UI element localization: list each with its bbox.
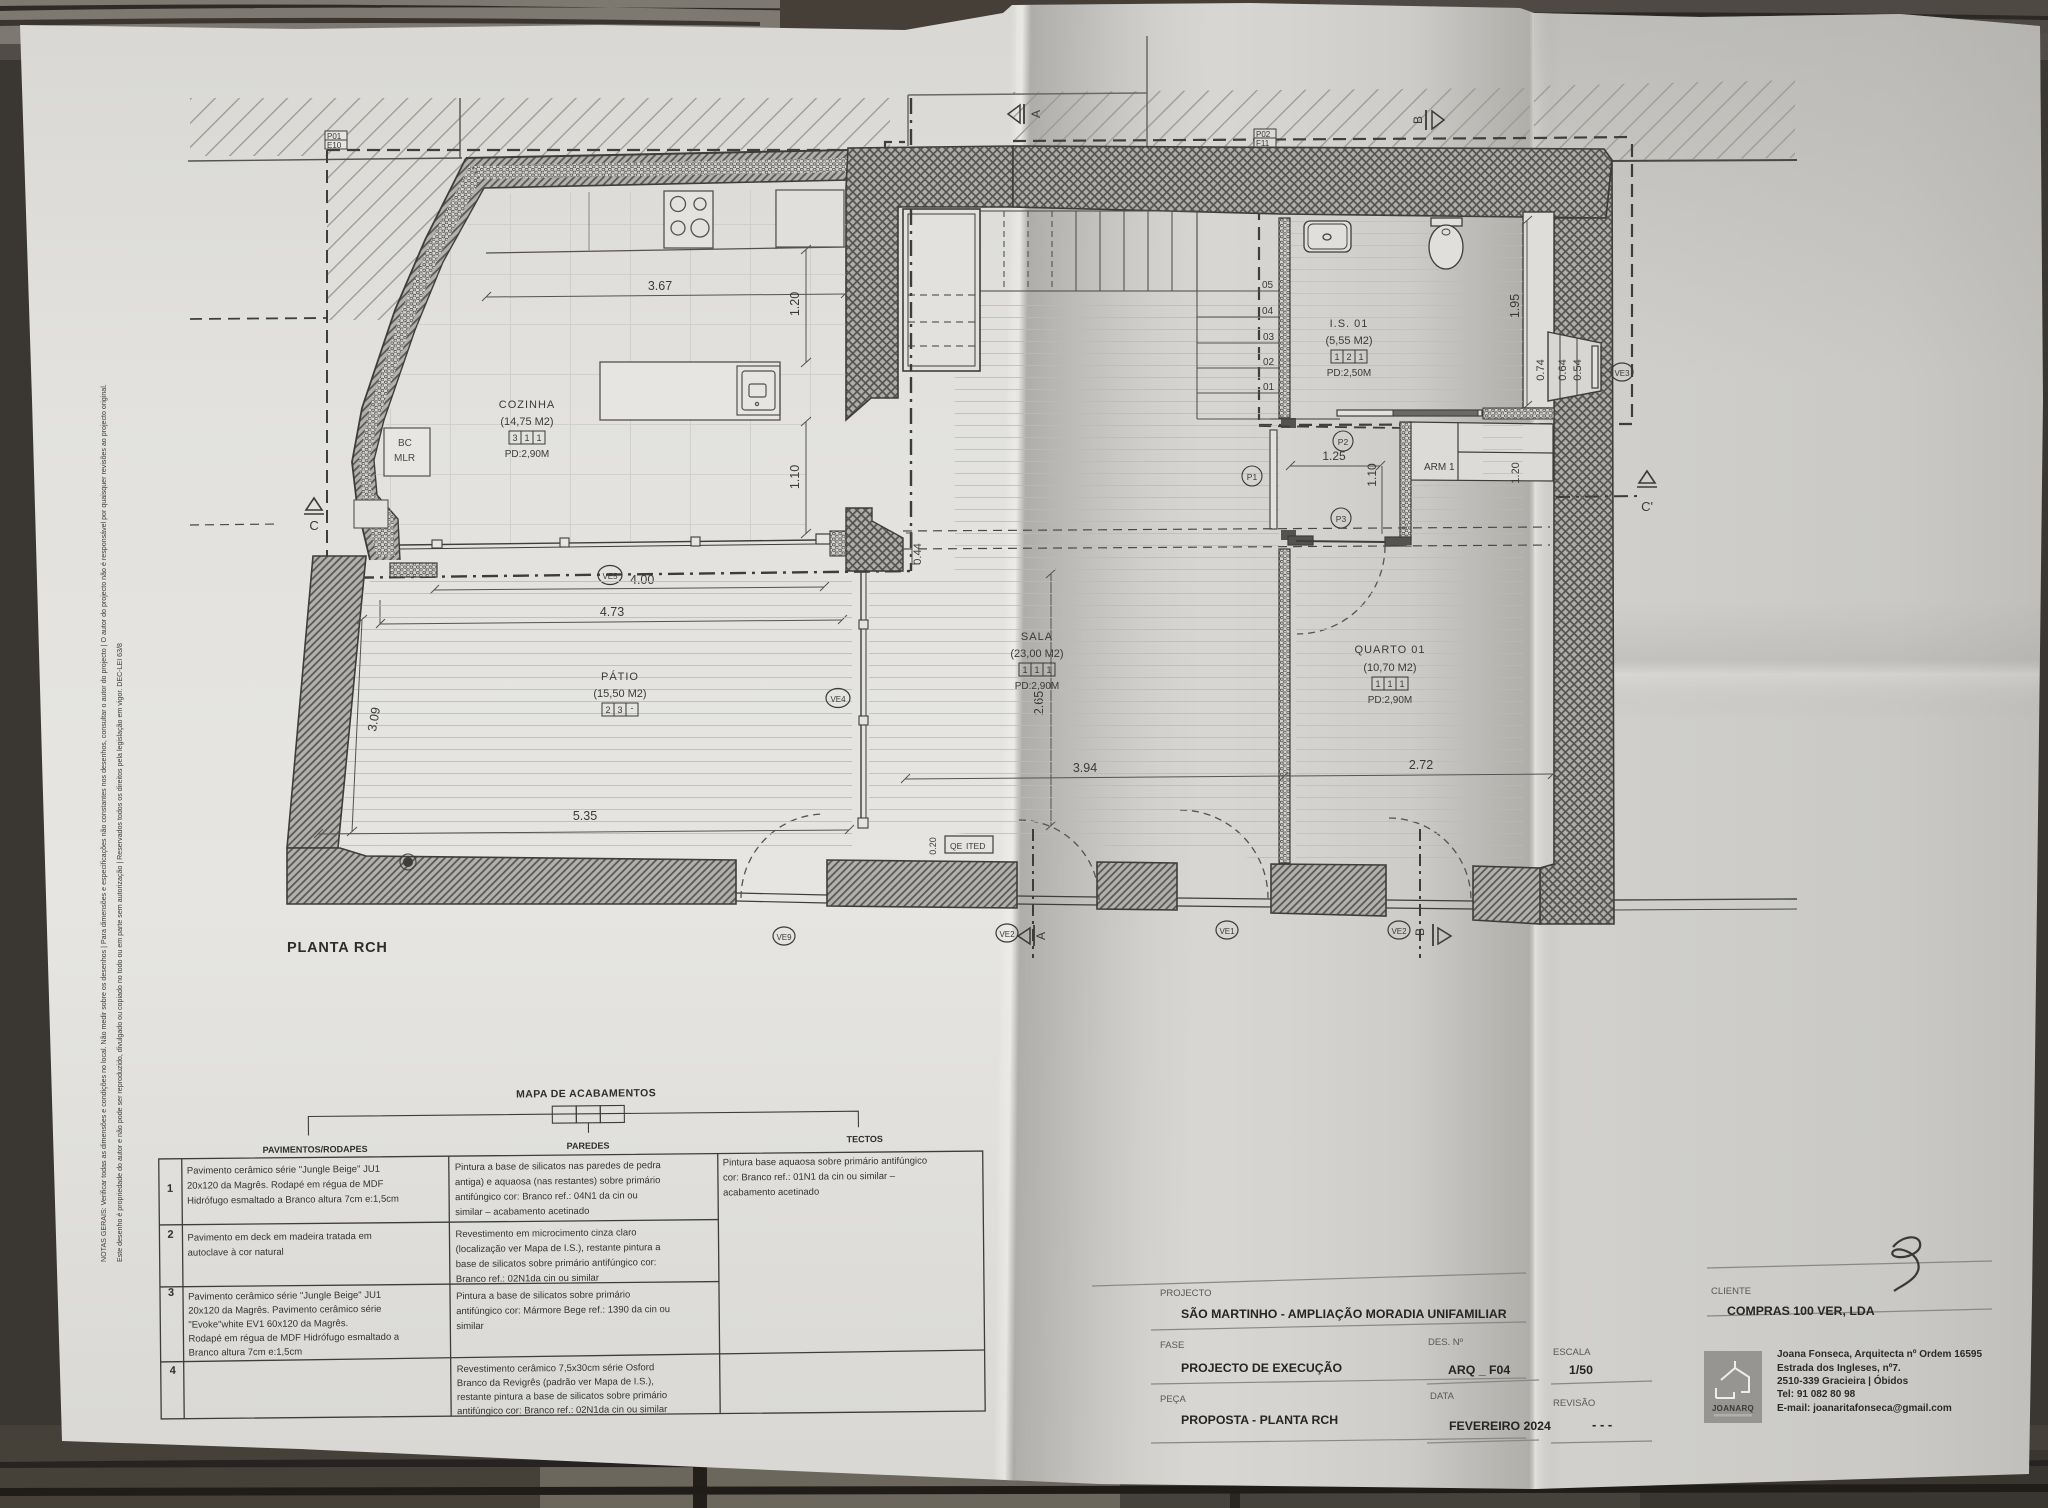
svg-text:Este desenho é propriedade do: Este desenho é propriedade do autor e nã… — [116, 643, 124, 1262]
svg-text:Pavimento cerâmico série "J: Pavimento cerâmico série "Jungle Beige" … — [187, 1164, 380, 1177]
svg-text:1: 1 — [167, 1183, 173, 1195]
svg-text:antiga) e aquaosa (nas res: antiga) e aquaosa (nas restantes) sobre … — [455, 1175, 661, 1188]
svg-text:1.10: 1.10 — [1365, 463, 1379, 487]
svg-text:PÁTIO: PÁTIO — [601, 670, 639, 683]
svg-text:VE2: VE2 — [999, 930, 1015, 939]
svg-text:1: 1 — [1022, 665, 1027, 675]
svg-text:ESCALA: ESCALA — [1553, 1347, 1591, 1358]
svg-text:QUARTO 01: QUARTO 01 — [1355, 644, 1426, 656]
svg-text:P01: P01 — [327, 132, 342, 141]
svg-text:SALA: SALA — [1021, 631, 1053, 643]
svg-text:PD:2,90M: PD:2,90M — [1368, 695, 1412, 706]
svg-text:Joana Fonseca, Arquitecta nº O: Joana Fonseca, Arquitecta nº Ordem 16595 — [1777, 1349, 1982, 1360]
svg-text:1.20: 1.20 — [788, 292, 802, 316]
svg-text:Branco da Revigrês (padrão: Branco da Revigrês (padrão ver Mapa de I… — [457, 1376, 654, 1389]
svg-text:20x120 da Magrês. Rodapé e: 20x120 da Magrês. Rodapé em régua de MDF — [187, 1179, 384, 1192]
svg-text:PEÇA: PEÇA — [1160, 1394, 1187, 1405]
svg-text:antifúngico cor: Branco ref: antifúngico cor: Branco ref.: 04N1 da ci… — [455, 1190, 638, 1203]
svg-text:C': C' — [1641, 499, 1653, 514]
svg-text:PROJECTO DE EXECUÇÃO: PROJECTO DE EXECUÇÃO — [1181, 1360, 1342, 1375]
svg-text:4: 4 — [170, 1365, 177, 1377]
svg-text:ARM 1: ARM 1 — [1424, 462, 1455, 473]
svg-text:3: 3 — [168, 1287, 174, 1299]
svg-text:PROJECTO: PROJECTO — [1160, 1288, 1212, 1299]
svg-text:Tel: 91 082 80 98: Tel: 91 082 80 98 — [1777, 1389, 1856, 1400]
svg-text:A: A — [1034, 932, 1048, 940]
svg-text:1: 1 — [1387, 679, 1392, 689]
svg-text:VE3: VE3 — [1614, 369, 1630, 378]
svg-text:1: 1 — [1046, 665, 1051, 675]
svg-text:0.44: 0.44 — [912, 543, 924, 564]
svg-text:1: 1 — [1375, 679, 1380, 689]
svg-text:0.64: 0.64 — [1557, 359, 1569, 380]
svg-text:5.35: 5.35 — [573, 809, 597, 823]
svg-text:2.72: 2.72 — [1409, 758, 1433, 772]
svg-text:0.20: 0.20 — [928, 837, 938, 855]
svg-text:(23,00 M2): (23,00 M2) — [1010, 648, 1063, 660]
svg-text:(10,70 M2): (10,70 M2) — [1363, 662, 1416, 674]
svg-text:Estrada dos Ingleses, nº7.: Estrada dos Ingleses, nº7. — [1777, 1363, 1901, 1374]
svg-text:VE4: VE4 — [830, 695, 846, 704]
svg-text:JOANARQ: JOANARQ — [1712, 1404, 1754, 1413]
svg-text:Hidrófugo esmaltado a Branc: Hidrófugo esmaltado a Branco altura 7cm … — [187, 1194, 399, 1207]
svg-text:1: 1 — [536, 433, 541, 443]
svg-text:Branco altura 7cm e:1,5cm: Branco altura 7cm e:1,5cm — [189, 1347, 303, 1359]
svg-text:antifúngico cor: Branco ref: antifúngico cor: Branco ref.: 02N1da cin… — [457, 1404, 667, 1417]
svg-text:Pavimento em deck em madei: Pavimento em deck em madeira tratada em — [187, 1231, 371, 1244]
svg-text:-: - — [631, 703, 634, 713]
svg-text:restante pintura a base de: restante pintura a base de silicatos sob… — [457, 1390, 667, 1403]
svg-text:PD:2,90M: PD:2,90M — [505, 449, 549, 460]
svg-text:E-mail: joanaritafonseca@gmail: E-mail: joanaritafonseca@gmail.com — [1777, 1403, 1952, 1414]
svg-text:REVISÃO: REVISÃO — [1553, 1398, 1595, 1409]
svg-text:cor: Branco ref.: 01N1 da: cor: Branco ref.: 01N1 da cin ou similar… — [723, 1171, 896, 1184]
svg-text:COZINHA: COZINHA — [499, 399, 556, 411]
svg-text:B: B — [1411, 116, 1425, 124]
svg-text:1.95: 1.95 — [1508, 294, 1522, 318]
svg-text:3.94: 3.94 — [1073, 761, 1097, 775]
svg-text:2: 2 — [167, 1229, 173, 1241]
svg-text:P2: P2 — [1338, 437, 1349, 447]
svg-text:0.74: 0.74 — [1535, 359, 1547, 380]
svg-text:MLR: MLR — [394, 453, 415, 464]
svg-text:COMPRAS 100 VER, LDA: COMPRAS 100 VER, LDA — [1727, 1304, 1875, 1318]
svg-text:02: 02 — [1263, 357, 1275, 368]
svg-text:Pintura base aquaosa sobre: Pintura base aquaosa sobre primário anti… — [723, 1156, 927, 1169]
svg-text:2: 2 — [605, 705, 610, 715]
svg-text:03: 03 — [1263, 332, 1275, 343]
svg-text:1.10: 1.10 — [788, 465, 802, 489]
svg-text:PAREDES: PAREDES — [567, 1141, 610, 1151]
svg-text:P1: P1 — [1247, 472, 1258, 482]
svg-text:2: 2 — [1346, 352, 1351, 362]
svg-text:PD:2,90M: PD:2,90M — [1015, 681, 1059, 692]
svg-text:3: 3 — [617, 705, 622, 715]
svg-text:TECTOS: TECTOS — [847, 1134, 883, 1144]
svg-text:antifúngico cor: Mármore Be: antifúngico cor: Mármore Bege ref.: 1390… — [456, 1304, 670, 1317]
svg-text:C: C — [309, 518, 318, 533]
svg-text:P3: P3 — [1336, 514, 1347, 524]
svg-text:similar: similar — [456, 1321, 484, 1332]
svg-text:ITED: ITED — [966, 841, 985, 851]
svg-text:acabamento acetinado: acabamento acetinado — [723, 1187, 819, 1199]
svg-text:1: 1 — [1358, 352, 1363, 362]
svg-text:1/50: 1/50 — [1569, 1363, 1593, 1377]
svg-text:MAPA DE ACABAMENTOS: MAPA DE ACABAMENTOS — [516, 1087, 656, 1100]
svg-text:(localização ver Mapa de I: (localização ver Mapa de I.S.), restante… — [456, 1242, 662, 1255]
svg-text:1: 1 — [1399, 679, 1404, 689]
svg-text:VE9: VE9 — [776, 933, 792, 942]
svg-text:SÃO MARTINHO - AMPLIAÇÃO MO: SÃO MARTINHO - AMPLIAÇÃO MORADIA UNIFAMI… — [1181, 1306, 1507, 1321]
svg-text:3.67: 3.67 — [648, 279, 672, 293]
svg-text:(14,75 M2): (14,75 M2) — [500, 416, 553, 428]
svg-text:FEVEREIRO 2024: FEVEREIRO 2024 — [1449, 1419, 1551, 1433]
svg-text:1.25: 1.25 — [1322, 449, 1346, 463]
svg-text:1: 1 — [1334, 352, 1339, 362]
svg-text:1: 1 — [1034, 665, 1039, 675]
svg-text:"Evoke"white EV1 60x120 da: "Evoke"white EV1 60x120 da Magrês. — [188, 1318, 348, 1331]
svg-text:NOTAS GERAIS: Verificar todas: NOTAS GERAIS: Verificar todas as dimensõ… — [100, 384, 108, 1262]
svg-text:Rodapé em régua de MDF Hi: Rodapé em régua de MDF Hidrófugo esmalta… — [188, 1332, 400, 1345]
svg-text:PAVIMENTOS/RODAPES: PAVIMENTOS/RODAPES — [263, 1144, 368, 1155]
svg-text:VE2: VE2 — [1391, 927, 1407, 936]
svg-text:P02: P02 — [1256, 130, 1271, 139]
svg-text:PLANTA RCH: PLANTA RCH — [287, 940, 388, 956]
svg-text:Revestimento cerâmico 7,5x30: Revestimento cerâmico 7,5x30cm série Osf… — [457, 1362, 655, 1375]
svg-text:autoclave à cor natural: autoclave à cor natural — [188, 1247, 284, 1259]
svg-text:E10: E10 — [327, 141, 342, 150]
svg-text:BC: BC — [398, 438, 412, 449]
svg-text:CLIENTE: CLIENTE — [1711, 1286, 1751, 1297]
svg-text:1: 1 — [524, 433, 529, 443]
svg-text:04: 04 — [1262, 306, 1274, 317]
svg-text:PD:2,50M: PD:2,50M — [1327, 368, 1371, 379]
svg-text:I.S. 01: I.S. 01 — [1330, 318, 1369, 330]
svg-text:similar – acabamento acetin: similar – acabamento acetinado — [455, 1206, 589, 1218]
svg-text:3: 3 — [512, 433, 517, 443]
svg-text:(15,50 M2): (15,50 M2) — [593, 688, 646, 700]
svg-text:(5,55 M2): (5,55 M2) — [1325, 335, 1372, 347]
svg-text:2510-339 Gracieira | Óbidos: 2510-339 Gracieira | Óbidos — [1777, 1374, 1909, 1387]
svg-text:Pintura a base de silicato: Pintura a base de silicatos sobre primár… — [456, 1289, 630, 1302]
svg-text:FASE: FASE — [1160, 1340, 1184, 1351]
svg-text:A: A — [1029, 110, 1043, 118]
svg-text:PROPOSTA - PLANTA RCH: PROPOSTA - PLANTA RCH — [1181, 1413, 1338, 1427]
svg-text:Revestimento em microcimento: Revestimento em microcimento cinza claro — [455, 1227, 636, 1240]
svg-text:DES. Nº: DES. Nº — [1428, 1337, 1464, 1348]
svg-text:DATA: DATA — [1430, 1391, 1455, 1402]
svg-text:B: B — [1413, 928, 1427, 936]
svg-text:Branco ref.: 02N1da cin ou: Branco ref.: 02N1da cin ou similar — [456, 1273, 599, 1285]
svg-text:base de silicatos sobre pr: base de silicatos sobre primário antifún… — [456, 1257, 657, 1270]
svg-text:05: 05 — [1262, 280, 1274, 291]
svg-text:QE: QE — [950, 841, 963, 851]
svg-text:- - -: - - - — [1592, 1417, 1612, 1432]
svg-text:Pintura a base de silicato: Pintura a base de silicatos nas paredes … — [455, 1160, 662, 1173]
svg-text:Pavimento cerâmico série "J: Pavimento cerâmico série "Jungle Beige" … — [188, 1290, 381, 1303]
svg-text:0.54: 0.54 — [1572, 359, 1584, 380]
svg-text:ARQ _ F04: ARQ _ F04 — [1448, 1363, 1510, 1377]
svg-text:VE1: VE1 — [1219, 927, 1235, 936]
svg-text:01: 01 — [1263, 382, 1275, 393]
svg-text:20x120 da Magrês. Pavimento: 20x120 da Magrês. Pavimento cerâmico sér… — [188, 1304, 381, 1317]
